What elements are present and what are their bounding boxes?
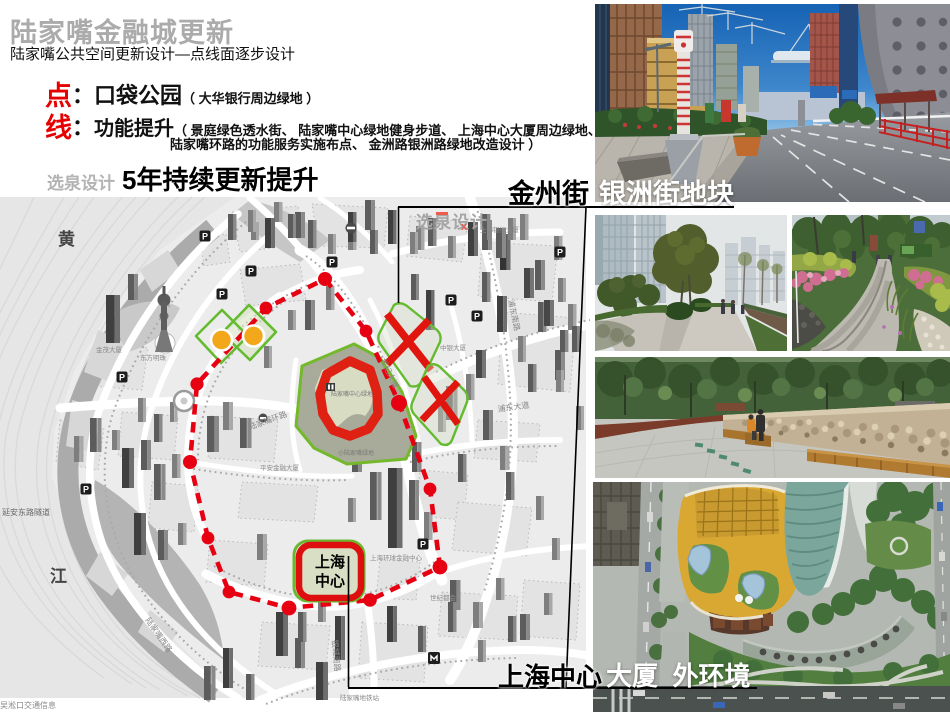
svg-text:P: P (557, 248, 563, 258)
svg-text:P: P (219, 290, 225, 300)
svg-text:上海环球金融中心: 上海环球金融中心 (370, 553, 423, 562)
svg-text:P: P (248, 267, 254, 277)
svg-text:P: P (329, 258, 335, 268)
svg-text:选泉设计: 选泉设计 (416, 212, 488, 232)
svg-text:P: P (119, 373, 125, 383)
svg-text:上海: 上海 (315, 553, 345, 571)
svg-text:世纪都会: 世纪都会 (430, 593, 457, 602)
svg-text:P: P (474, 312, 480, 322)
svg-text:中银大厦: 中银大厦 (440, 343, 467, 352)
svg-text:陆家嘴中心绿地: 陆家嘴中心绿地 (331, 390, 373, 398)
svg-text:金茂大厦: 金茂大厦 (96, 345, 123, 354)
svg-text:东方明珠: 东方明珠 (140, 353, 167, 362)
svg-text:x: x (461, 221, 468, 233)
svg-text:中心: 中心 (315, 572, 345, 590)
svg-text:平安金融大厦: 平安金融大厦 (260, 463, 300, 472)
svg-text:陆家嘴地铁站: 陆家嘴地铁站 (340, 693, 380, 702)
svg-text:P: P (202, 232, 208, 242)
svg-text:小陆家嘴绿地: 小陆家嘴绿地 (338, 449, 374, 457)
svg-text:延安东路隧道: 延安东路隧道 (2, 507, 50, 517)
svg-text:P: P (448, 296, 454, 306)
svg-text:黄: 黄 (58, 229, 75, 249)
svg-text:江: 江 (50, 567, 67, 586)
svg-text:P: P (83, 485, 89, 495)
svg-text:吴淞口交通信息: 吴淞口交通信息 (0, 700, 56, 710)
svg-text:P: P (420, 540, 426, 550)
